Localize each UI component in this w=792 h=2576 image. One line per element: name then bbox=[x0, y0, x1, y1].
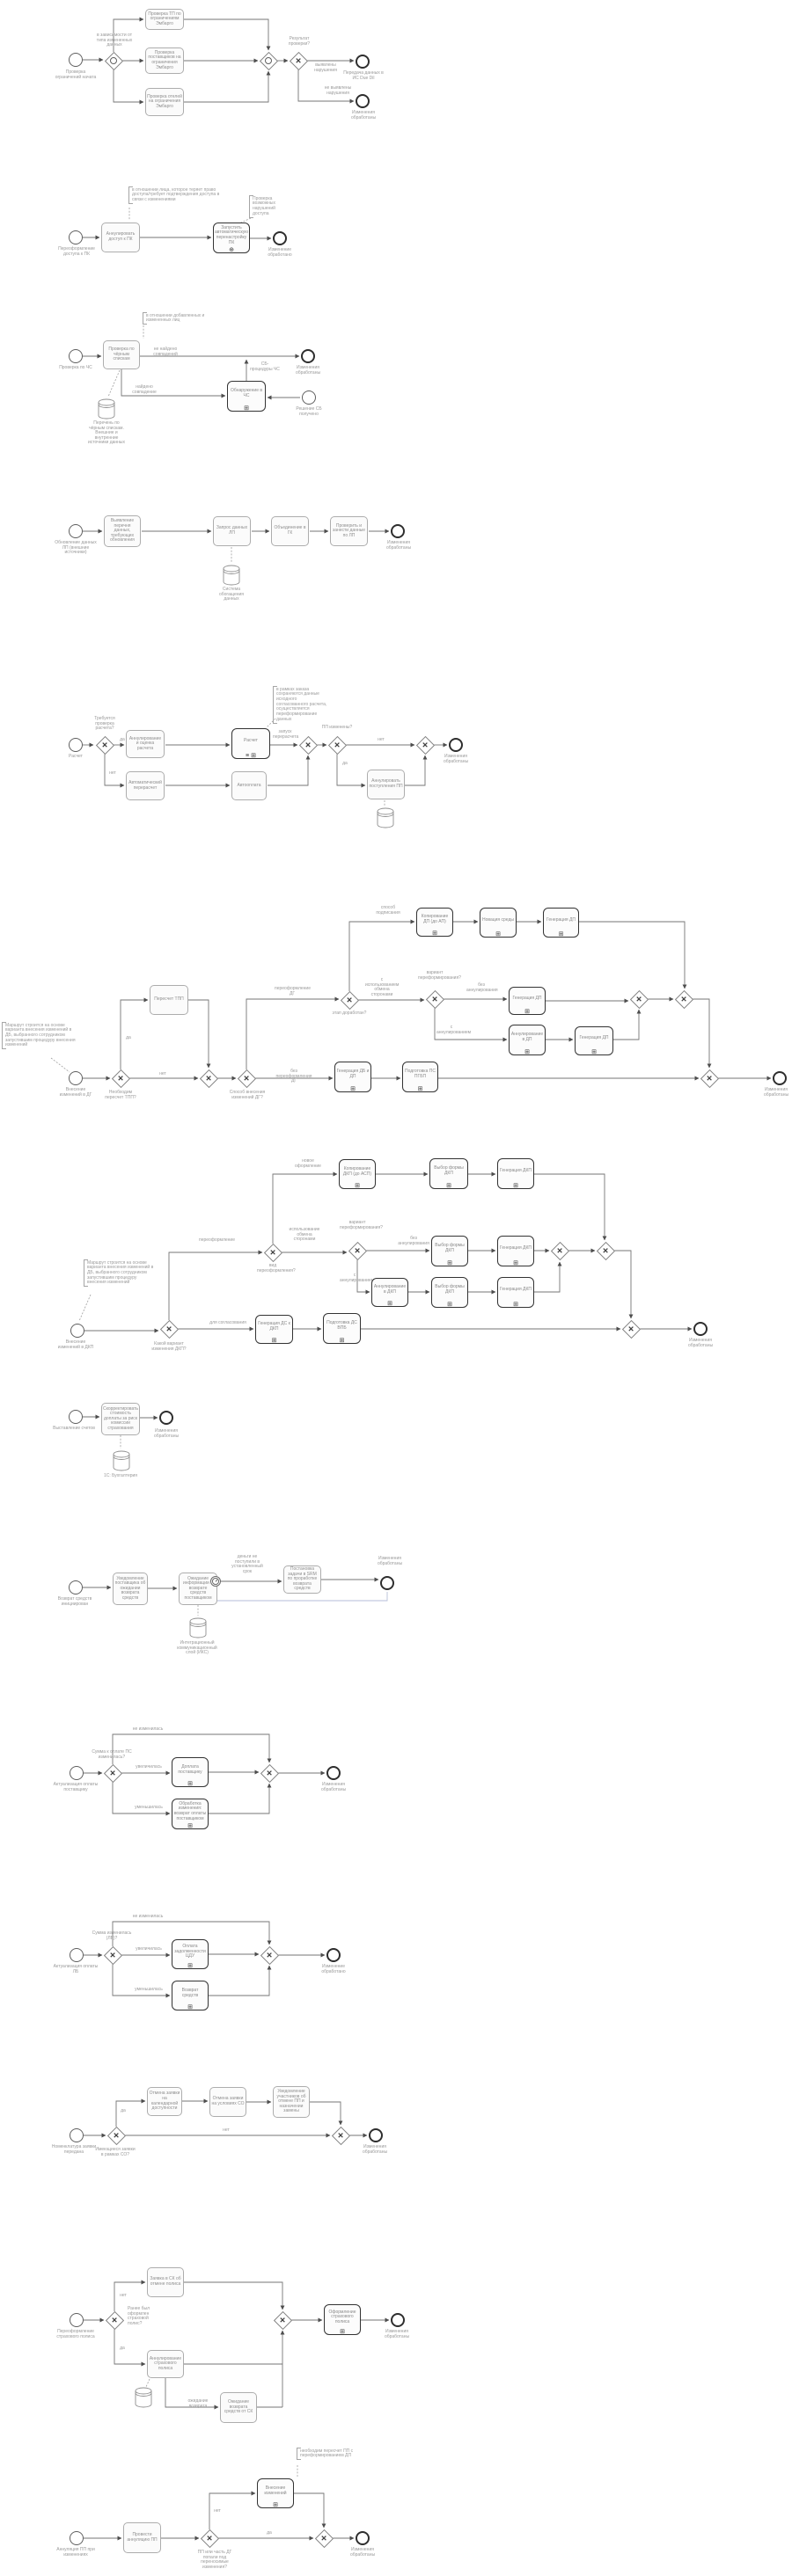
end-event-label: Изменения обработаны bbox=[341, 2548, 384, 2558]
xor-marker-icon: ✕ bbox=[700, 1069, 718, 1087]
multi-instance-subprocess-marker-icon: ≡ ⊞ bbox=[246, 753, 256, 759]
exclusive-gateway[interactable]: ✕ bbox=[104, 1764, 121, 1782]
edge-label: увеличилась bbox=[135, 1947, 163, 1952]
xor-marker-icon: ✕ bbox=[332, 2127, 349, 2144]
subprocess-marker-icon: ⊞ bbox=[272, 1338, 277, 1344]
xor-marker-icon: ✕ bbox=[290, 52, 307, 69]
exclusive-gateway[interactable]: ✕ bbox=[332, 2127, 349, 2144]
end-event-label: Передача данных в ИС Due Dil bbox=[341, 71, 385, 81]
subprocess-marker-icon: ⊞ bbox=[591, 1049, 597, 1055]
start-event[interactable] bbox=[70, 2531, 84, 2545]
subprocess[interactable]: Генерация ДП⊞ bbox=[509, 987, 546, 1015]
end-event[interactable] bbox=[326, 1948, 341, 1962]
subprocess[interactable]: Копирование ДП (до АП)⊞ bbox=[416, 908, 453, 937]
subprocess-label: Подготовка ПС ПГБП bbox=[404, 1069, 436, 1079]
start-event-label: Внесение изменений в ДГ bbox=[56, 1088, 95, 1098]
edge-label: нет bbox=[220, 2128, 232, 2134]
start-event-label: Номенклатура заявки передана bbox=[49, 2145, 99, 2155]
subprocess-marker-icon: ⊞ bbox=[340, 2329, 345, 2335]
edge-label: для согласования bbox=[209, 1321, 246, 1326]
exclusive-gateway[interactable]: ✕ bbox=[96, 736, 114, 754]
subprocess[interactable]: Выбор формы ДКП⊞ bbox=[431, 1277, 468, 1308]
subprocess-marker-icon: ⊞ bbox=[355, 1183, 360, 1189]
data-store[interactable] bbox=[188, 1617, 208, 1638]
start-event-label: Актуализация оплаты поставщику bbox=[53, 1783, 99, 1792]
start-event[interactable] bbox=[70, 1324, 84, 1338]
exclusive-gateway[interactable]: ✕ bbox=[274, 2311, 291, 2329]
edge-label: без аннулирования bbox=[466, 983, 496, 993]
text-annotation: Маршрут строится на основе варианта внес… bbox=[2, 1022, 76, 1049]
exclusive-gateway[interactable]: ✕ bbox=[348, 1242, 366, 1259]
edge-label: нет bbox=[157, 1072, 169, 1077]
exclusive-gateway[interactable]: ✕ bbox=[201, 2529, 218, 2547]
exclusive-gateway[interactable]: ✕ bbox=[630, 990, 648, 1008]
exclusive-gateway[interactable]: ✕ bbox=[328, 736, 346, 754]
subprocess-marker-icon: ⊞ bbox=[513, 1183, 518, 1189]
subprocess-label: Копирование ДКП (до АСП) bbox=[341, 1167, 374, 1177]
bpmn-diagram-sheet: Проверка ограничений начата в зависимост… bbox=[0, 0, 792, 2576]
subprocess-label: Аннулирование в ДКП bbox=[373, 1285, 407, 1295]
text-annotation: в отношении добавленных и измененных лиц bbox=[143, 312, 231, 325]
data-store-label: 1С: Бухгалтерия bbox=[97, 1474, 144, 1479]
edge-label: не изменилась bbox=[132, 1727, 164, 1733]
task[interactable]: Проверка ТП по ограничениям Эмбарго bbox=[145, 9, 184, 30]
start-event-label: Аннуляция ПП при изменениях bbox=[53, 2548, 99, 2558]
inclusive-marker-icon bbox=[110, 57, 117, 64]
subprocess-label: Обработка изменения: возврат оплаты пост… bbox=[173, 1802, 207, 1821]
edge-label: без переоформления ДГ bbox=[275, 1069, 313, 1084]
task[interactable]: Проверка отелей на ограничения Эмбарго bbox=[145, 88, 184, 116]
subprocess-marker-icon: ⊞ bbox=[432, 930, 437, 937]
subprocess[interactable]: Генерация ДП⊞ bbox=[543, 908, 579, 938]
task[interactable]: Постановка задачи в SRM по проработке во… bbox=[283, 1565, 321, 1594]
edge-label: способ подписания bbox=[370, 906, 407, 916]
xor-marker-icon: ✕ bbox=[200, 1069, 217, 1087]
exclusive-gateway[interactable]: ✕ bbox=[104, 1946, 121, 1964]
subprocess-marker-icon: ⊞ bbox=[418, 1086, 423, 1092]
end-event[interactable] bbox=[391, 2313, 405, 2327]
end-event-label: Изменения обработаны bbox=[438, 755, 473, 764]
xor-marker-icon: ✕ bbox=[104, 1764, 121, 1782]
end-event[interactable] bbox=[773, 1071, 787, 1085]
edge-label: нет bbox=[117, 2294, 129, 2299]
start-event-label: Обновление данных ЛП (внешние источники) bbox=[53, 541, 99, 556]
subprocess-label: Подготовка ДС ВПБ bbox=[325, 1321, 359, 1331]
start-event[interactable] bbox=[69, 738, 83, 752]
subprocess[interactable]: Выбор формы ДКП⊞ bbox=[431, 1236, 468, 1266]
subprocess[interactable]: Аннулирование в ДКП⊞ bbox=[371, 1278, 408, 1307]
subprocess[interactable]: Копирование ДКП (до АСП)⊞ bbox=[339, 1159, 376, 1189]
exclusive-gateway[interactable]: ✕ bbox=[112, 1069, 129, 1087]
gateway-label: Необходим пересчет ТПП? bbox=[102, 1091, 139, 1100]
data-store[interactable] bbox=[134, 2387, 153, 2408]
exclusive-gateway[interactable]: ✕ bbox=[107, 2127, 125, 2144]
gateway-label: вариант переформирования? bbox=[418, 971, 451, 981]
data-store[interactable] bbox=[376, 807, 395, 828]
subprocess-marker-icon: ⊞ bbox=[524, 1049, 530, 1055]
gateway-label: Результат проверки? bbox=[285, 37, 313, 47]
gateway-label: вид переоформления? bbox=[257, 1264, 289, 1273]
data-store-label: Интеграционный коммуникационный слой (ИК… bbox=[174, 1641, 220, 1656]
start-event-label: Внесение изменений в ДКП bbox=[55, 1340, 97, 1350]
edge-label: да bbox=[123, 1036, 134, 1041]
subprocess[interactable]: Внесение изменений⊞ bbox=[257, 2478, 294, 2508]
text-annotation: в рамках заказа сохраняются данные исход… bbox=[273, 686, 327, 724]
end-event[interactable] bbox=[380, 1576, 394, 1590]
task[interactable]: Заявка в СК об отмене полиса bbox=[147, 2267, 184, 2297]
start-event[interactable] bbox=[69, 1410, 83, 1424]
xor-marker-icon: ✕ bbox=[348, 1242, 366, 1259]
end-event[interactable] bbox=[326, 1766, 341, 1780]
subprocess-marker-icon: ⊞ bbox=[187, 1963, 193, 1969]
end-event-label: Изменения обработаны bbox=[760, 1088, 792, 1098]
xor-marker-icon: ✕ bbox=[299, 736, 317, 754]
task[interactable]: Уведомление участников об отмене ПП и на… bbox=[273, 2086, 310, 2118]
end-event-label: Изменения обработаны bbox=[354, 2145, 396, 2155]
gateway-label: Имеющиеся заявки в рамках СО? bbox=[95, 2148, 136, 2157]
subprocess[interactable]: Расчет≡ ⊞ bbox=[231, 728, 270, 759]
gateway-label: Требуется проверка расчета? bbox=[87, 717, 122, 732]
text-annotation: в отношении лица, которое теряет право д… bbox=[128, 186, 224, 204]
gateway-label: Ранее был оформлен страховой полис? bbox=[128, 2307, 158, 2326]
start-event-label: Расчет bbox=[63, 755, 88, 760]
edge-label: не выявлены нарушения bbox=[322, 86, 354, 96]
task[interactable]: Проверить и занести данные по ЛП bbox=[330, 516, 368, 546]
edge-label: да bbox=[117, 2346, 128, 2352]
subprocess[interactable]: Оплата задолженности ЦДУ⊞ bbox=[172, 1939, 209, 1969]
xor-marker-icon: ✕ bbox=[96, 736, 114, 754]
end-event-label: Изменения обработаны bbox=[681, 1339, 720, 1348]
exclusive-gateway[interactable]: ✕ bbox=[299, 736, 317, 754]
edge-label: деньги не поступили в установленный срок bbox=[231, 1555, 264, 1574]
task[interactable]: Проверка поставщиков на ограничения Эмба… bbox=[145, 47, 184, 74]
start-event-label: Переоформление страхового полиса bbox=[53, 2330, 99, 2339]
edge-label: ожидание возврата bbox=[180, 2399, 216, 2409]
subprocess-label: Расчет bbox=[244, 739, 258, 744]
subprocess-marker-icon: ⊞ bbox=[187, 1781, 193, 1787]
subprocess[interactable]: Генерация ДКП⊞ bbox=[497, 1158, 534, 1189]
edge-label: с аннулированием bbox=[436, 1025, 466, 1035]
subprocess[interactable]: Оформление страхового полиса⊞ bbox=[324, 2304, 361, 2335]
gateway-label: в зависимости от типа измененных данных bbox=[94, 33, 135, 48]
start-event-label: Возврат средств инициирован bbox=[55, 1597, 95, 1607]
subprocess-label: Генерация ДП bbox=[546, 918, 576, 923]
subprocess[interactable]: Генерация ДП⊞ bbox=[575, 1026, 613, 1055]
gateway-label: Какой вариант изменения ДКП? bbox=[148, 1342, 190, 1352]
gateway-label: Способ внесения изменений ДГ? bbox=[227, 1091, 268, 1100]
task[interactable]: Аннулирование и оценка расчета bbox=[126, 730, 165, 758]
subprocess-marker-icon: ⊞ bbox=[244, 405, 249, 412]
edge-label: не найдено совпадений bbox=[148, 347, 183, 357]
task[interactable]: Провести аннуляцию ПП bbox=[123, 2522, 161, 2553]
text-annotation: Проверка возможных нарушений доступа bbox=[249, 195, 288, 218]
task[interactable]: Аннулировать поступления ПП bbox=[367, 770, 405, 799]
start-event-label: Проверка ограничений начата bbox=[55, 70, 97, 80]
exclusive-gateway[interactable]: ✕ bbox=[426, 990, 444, 1008]
start-event[interactable] bbox=[69, 1580, 83, 1594]
subprocess[interactable]: Аннулирование в ДП⊞ bbox=[509, 1025, 546, 1055]
xor-marker-icon: ✕ bbox=[426, 990, 444, 1008]
edge-label: найдено совпадение bbox=[128, 385, 160, 395]
subprocess-label: Возврат средств bbox=[173, 1989, 207, 1998]
end-event-label: Изменения обработаны bbox=[313, 1783, 354, 1792]
inclusive-marker-icon bbox=[265, 57, 272, 64]
exclusive-gateway[interactable]: ✕ bbox=[416, 736, 434, 754]
start-event[interactable] bbox=[70, 2313, 84, 2327]
task[interactable]: Ожидание возврата средств от СК bbox=[220, 2392, 257, 2423]
end-event[interactable] bbox=[693, 1322, 708, 1336]
edge-label: переоформление ДГ bbox=[275, 987, 310, 996]
gateway-label: этап доработан? bbox=[326, 1011, 372, 1017]
subprocess-marker-icon: ⊞ bbox=[495, 931, 501, 938]
end-event-label: Изменение обработано bbox=[260, 248, 300, 258]
edge-label: не изменилась bbox=[132, 1915, 164, 1920]
exclusive-gateway[interactable]: ✕ bbox=[160, 1320, 178, 1338]
gateway-label: Сумма к оплате ПС изменилась? bbox=[90, 1750, 134, 1760]
end-event-label: Изменения обработаны bbox=[371, 1557, 408, 1566]
start-event[interactable] bbox=[70, 1766, 84, 1780]
edge-label: нет bbox=[211, 2509, 224, 2514]
xor-marker-icon: ✕ bbox=[160, 1320, 178, 1338]
start-event[interactable] bbox=[302, 390, 316, 405]
xor-marker-icon: ✕ bbox=[112, 1069, 129, 1087]
xor-marker-icon: ✕ bbox=[238, 1069, 255, 1087]
exclusive-gateway[interactable]: ✕ bbox=[264, 1244, 282, 1261]
exclusive-gateway[interactable]: ✕ bbox=[260, 1764, 278, 1782]
subprocess-marker-icon: ⊞ bbox=[340, 1338, 345, 1344]
subprocess-marker-icon: ⊞ bbox=[387, 1301, 392, 1307]
start-event-label: Переоформление доступа к ПК bbox=[55, 247, 98, 257]
subprocess-label: Генерация ДКП bbox=[500, 1169, 532, 1174]
edge-label: с аннулированием bbox=[340, 1273, 370, 1283]
xor-marker-icon: ✕ bbox=[675, 990, 693, 1008]
subprocess-label: Выбор формы ДКП bbox=[433, 1244, 466, 1253]
edge-label: уменьшилась bbox=[135, 1988, 163, 1993]
xor-marker-icon: ✕ bbox=[107, 2127, 125, 2144]
start-event[interactable] bbox=[69, 53, 83, 67]
xor-marker-icon: ✕ bbox=[106, 2311, 123, 2329]
timer-boundary-event-icon[interactable] bbox=[210, 1576, 221, 1587]
start-event[interactable] bbox=[69, 1071, 83, 1085]
data-store[interactable] bbox=[222, 565, 241, 586]
data-store-label: Система обогащения данных bbox=[211, 587, 252, 602]
start-event[interactable] bbox=[69, 230, 83, 244]
exclusive-gateway[interactable]: ✕ bbox=[551, 1242, 568, 1259]
compensation-marker-icon: ⊕ bbox=[229, 247, 234, 253]
start-event[interactable] bbox=[70, 2128, 84, 2142]
text-annotation: Маршрут строится на основе варианта внес… bbox=[84, 1259, 156, 1287]
end-event[interactable] bbox=[273, 231, 287, 245]
subprocess-label: Оформление страхового полиса bbox=[326, 2310, 359, 2325]
xor-marker-icon: ✕ bbox=[622, 1320, 640, 1338]
exclusive-gateway[interactable]: ✕ bbox=[200, 1069, 217, 1087]
subprocess-marker-icon: ⊞ bbox=[350, 1086, 356, 1092]
exclusive-gateway[interactable]: ✕ bbox=[238, 1069, 255, 1087]
edge-label: нет bbox=[374, 738, 388, 743]
exclusive-gateway[interactable]: ✕ bbox=[260, 1946, 278, 1964]
xor-marker-icon: ✕ bbox=[274, 2311, 291, 2329]
gateway-label: ПП или часть ДГ попали под переносимые и… bbox=[192, 2550, 238, 2570]
subprocess-marker-icon: ⊞ bbox=[513, 1302, 518, 1308]
end-event[interactable] bbox=[369, 2128, 383, 2142]
xor-marker-icon: ✕ bbox=[597, 1242, 614, 1259]
edge-label: переоформление bbox=[199, 1238, 234, 1244]
end-event[interactable] bbox=[301, 349, 315, 363]
subprocess-marker-icon: ⊞ bbox=[513, 1260, 518, 1266]
subprocess[interactable]: Новация среды⊞ bbox=[480, 908, 517, 938]
subprocess[interactable]: Обработка изменения: возврат оплаты пост… bbox=[172, 1799, 209, 1829]
subprocess[interactable]: Генерация ДКП⊞ bbox=[497, 1236, 534, 1266]
start-event[interactable] bbox=[69, 349, 83, 363]
data-store-label: Перечень по чёрным спискам. Внешние и вн… bbox=[85, 421, 128, 446]
end-event[interactable] bbox=[449, 738, 463, 752]
subprocess-label: Генерация ДКП bbox=[500, 1246, 532, 1252]
subprocess-marker-icon: ⊞ bbox=[524, 1009, 530, 1015]
subprocess[interactable]: Возврат средств⊞ bbox=[172, 1981, 209, 2010]
subprocess[interactable]: Выбор формы ДКП⊞ bbox=[429, 1158, 468, 1189]
inclusive-gateway[interactable] bbox=[105, 52, 122, 69]
exclusive-gateway[interactable]: ✕ bbox=[315, 2529, 333, 2547]
subprocess[interactable]: Доплата поставщику⊞ bbox=[172, 1757, 209, 1787]
task[interactable]: Автоматический перерасчет bbox=[126, 771, 165, 800]
start-event-label: Проверка по ЧС bbox=[55, 366, 96, 371]
task[interactable]: Запрос данных ЛП bbox=[213, 516, 251, 546]
edge-label: да bbox=[118, 2109, 128, 2114]
data-store[interactable] bbox=[97, 398, 116, 420]
edge-label: без аннулирования bbox=[398, 1237, 429, 1246]
subprocess-label: Выбор формы ДКП bbox=[431, 1166, 466, 1176]
subprocess-marker-icon: ⊞ bbox=[559, 931, 564, 938]
subprocess-label: Генерация ДП bbox=[580, 1036, 609, 1041]
xor-marker-icon: ✕ bbox=[260, 1764, 278, 1782]
end-event-label: Изменения обработаны bbox=[146, 1429, 187, 1439]
end-event[interactable] bbox=[356, 94, 370, 108]
subprocess-label: Аннулирование в ДП bbox=[510, 1033, 544, 1042]
end-event-label: Изменения обработаны bbox=[377, 2330, 417, 2339]
subprocess-label: Доплата поставщику bbox=[173, 1765, 207, 1775]
edge-label: СБ-процедуры ЧС bbox=[250, 362, 280, 372]
task[interactable]: Скорректировать стоимость доплаты за рис… bbox=[101, 1403, 140, 1435]
edge-label: нет bbox=[106, 771, 119, 777]
subprocess-label: Выбор формы ДКП bbox=[433, 1285, 466, 1295]
subprocess-label: Генерация ДБ и ДП bbox=[336, 1069, 370, 1079]
end-event-label: Изменения обработаны bbox=[345, 111, 382, 120]
end-event[interactable] bbox=[356, 2531, 370, 2545]
gateway-label: ПП изменены? bbox=[319, 726, 355, 731]
xor-marker-icon: ✕ bbox=[104, 1946, 121, 1964]
xor-marker-icon: ✕ bbox=[328, 736, 346, 754]
subprocess-label: Внесение изменений bbox=[259, 2486, 292, 2496]
task[interactable]: Аннулирование страхового полиса bbox=[147, 2350, 184, 2378]
task[interactable]: Аннулировать доступ к ПК bbox=[101, 223, 140, 252]
subprocess-marker-icon: ⊞ bbox=[446, 1183, 451, 1189]
task[interactable]: Пересчет ТПП bbox=[150, 985, 188, 1015]
task[interactable]: Автооплата bbox=[231, 771, 267, 800]
exclusive-gateway[interactable]: ✕ bbox=[597, 1242, 614, 1259]
edge-label: увеличилась bbox=[135, 1765, 163, 1770]
end-event-label: Изменения обработаны bbox=[378, 541, 419, 551]
end-event-label: Изменение обработано bbox=[313, 1965, 354, 1974]
start-event-label: Выставление счетов bbox=[51, 1427, 97, 1432]
subprocess-label: Обнаружение в ЧС bbox=[229, 389, 264, 398]
data-store[interactable] bbox=[112, 1450, 131, 1471]
subprocess-label: Копирование ДП (до АП) bbox=[418, 915, 451, 924]
edge-label: с использованием обмена сторонами bbox=[365, 978, 399, 997]
subprocess-label: Генерация ДКП bbox=[500, 1288, 532, 1293]
subprocess-marker-icon: ⊞ bbox=[273, 2502, 278, 2508]
task[interactable]: Отмена заявки на условиях СО bbox=[209, 2087, 246, 2117]
xor-marker-icon: ✕ bbox=[341, 991, 358, 1009]
edge-label: да bbox=[264, 2531, 275, 2536]
xor-marker-icon: ✕ bbox=[630, 990, 648, 1008]
subprocess[interactable]: Подготовка ПС ПГБП⊞ bbox=[402, 1062, 438, 1092]
subprocess-label: Генерация ДС к ДКП bbox=[257, 1322, 291, 1332]
exclusive-gateway[interactable]: ✕ bbox=[700, 1069, 718, 1087]
subprocess-label: Оплата задолженности ЦДУ bbox=[173, 1945, 207, 1959]
xor-marker-icon: ✕ bbox=[201, 2529, 218, 2547]
d13-edges bbox=[84, 2282, 389, 2407]
text-annotation: необходим пересчет ПП с переформирование… bbox=[297, 2448, 356, 2460]
xor-marker-icon: ✕ bbox=[260, 1946, 278, 1964]
subprocess-marker-icon: ⊞ bbox=[187, 2004, 193, 2010]
gateway-label: вариант переформирования? bbox=[340, 1221, 375, 1230]
start-event-label: Решение СБ получено bbox=[290, 407, 327, 417]
subprocess[interactable]: Генерация ДС к ДКП⊞ bbox=[255, 1315, 293, 1344]
subprocess[interactable]: Обнаружение в ЧС⊞ bbox=[227, 381, 266, 412]
subprocess-label: Запустить автоматическую перенастройку П… bbox=[215, 226, 248, 245]
inclusive-gateway[interactable] bbox=[260, 52, 277, 69]
exclusive-gateway[interactable]: ✕ bbox=[622, 1320, 640, 1338]
exclusive-gateway[interactable]: ✕ bbox=[106, 2311, 123, 2329]
edge-label: использование обмена сторонами bbox=[287, 1228, 322, 1243]
xor-marker-icon: ✕ bbox=[264, 1244, 282, 1261]
exclusive-gateway[interactable]: ✕ bbox=[341, 991, 358, 1009]
end-event[interactable] bbox=[356, 55, 370, 69]
xor-marker-icon: ✕ bbox=[315, 2529, 333, 2547]
xor-marker-icon: ✕ bbox=[551, 1242, 568, 1259]
task[interactable]: Отмена заявки на календарной доступности bbox=[147, 2087, 182, 2116]
start-event[interactable] bbox=[70, 1948, 84, 1962]
edge-label: выявлены нарушения bbox=[310, 63, 341, 73]
end-event[interactable] bbox=[391, 524, 405, 538]
xor-marker-icon: ✕ bbox=[416, 736, 434, 754]
subprocess[interactable]: Подготовка ДС ВПБ⊞ bbox=[323, 1313, 361, 1344]
task[interactable]: Объединение в ГК bbox=[271, 516, 309, 546]
subprocess-marker-icon: ⊞ bbox=[447, 1260, 452, 1266]
subprocess[interactable]: Генерация ДКП⊞ bbox=[497, 1277, 534, 1308]
subprocess[interactable]: Запустить автоматическую перенастройку П… bbox=[213, 223, 250, 253]
task[interactable]: Проверка по чёрным спискам bbox=[103, 340, 140, 369]
start-event[interactable] bbox=[69, 524, 83, 538]
subprocess-label: Генерация ДП bbox=[513, 996, 542, 1002]
subprocess-label: Новация среды bbox=[482, 918, 514, 923]
edge-label: уменьшилась bbox=[135, 1806, 163, 1811]
subprocess-marker-icon: ⊞ bbox=[187, 1823, 193, 1829]
task[interactable]: Выявление перечня данных, требующих обно… bbox=[104, 515, 141, 547]
start-event-label: Актуализация оплаты ЛБ bbox=[53, 1965, 99, 1974]
edge-label: запуск перерасчета bbox=[273, 730, 297, 740]
exclusive-gateway[interactable]: ✕ bbox=[290, 52, 307, 69]
edge-label: да bbox=[340, 762, 350, 767]
task[interactable]: Уведомление поставщика об ожидании возвр… bbox=[113, 1573, 148, 1605]
edge-label: новое оформление bbox=[290, 1159, 326, 1169]
end-event[interactable] bbox=[159, 1411, 173, 1425]
gateway-label: Сумма изменилась (ЛБ)? bbox=[92, 1931, 132, 1941]
subprocess[interactable]: Генерация ДБ и ДП⊞ bbox=[334, 1062, 371, 1092]
subprocess-marker-icon: ⊞ bbox=[447, 1302, 452, 1308]
end-event-label: Изменения обработаны bbox=[290, 366, 326, 376]
exclusive-gateway[interactable]: ✕ bbox=[675, 990, 693, 1008]
